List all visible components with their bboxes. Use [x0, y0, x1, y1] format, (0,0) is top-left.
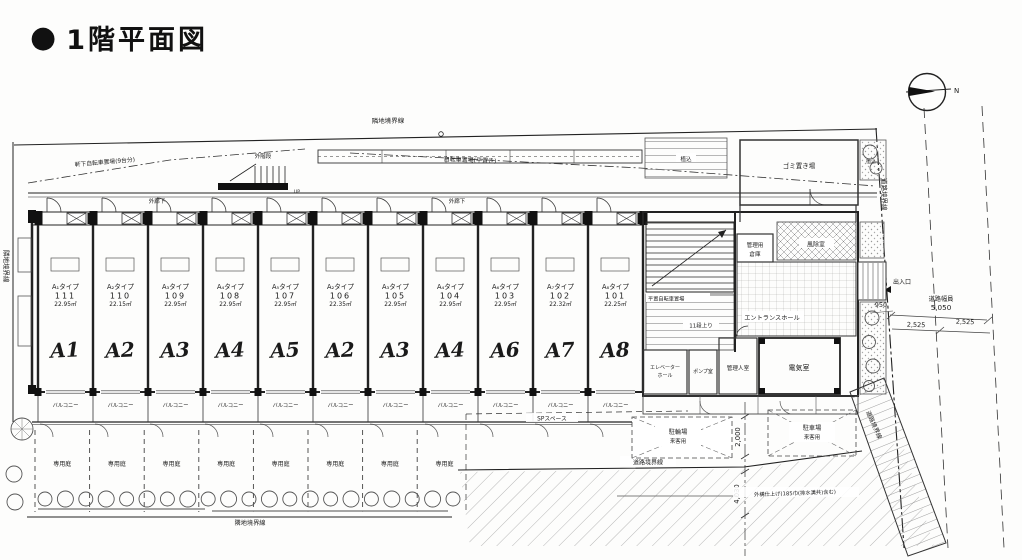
entry-label: 出入口: [893, 278, 911, 286]
unit-type-label: A₂タイプ: [107, 282, 134, 291]
porch-door-arc: [700, 401, 713, 414]
entry-door-arc: [102, 198, 116, 212]
unit-number-label: 101: [605, 292, 626, 301]
unit-handwritten-mark: A3: [378, 337, 411, 363]
garden-gate-arc: [315, 424, 328, 437]
closet-box: [106, 258, 134, 271]
shrub: [343, 491, 359, 507]
closet-box: [216, 258, 244, 271]
dim-2000-label: 2,000: [734, 427, 742, 446]
column: [834, 388, 840, 394]
visitor-bike-label-2: 来客用: [670, 437, 686, 445]
garden-label: 専用庭: [326, 460, 344, 468]
balcony-label: バルコニー: [438, 402, 464, 409]
boundary-marker: [439, 132, 444, 137]
south-yard: 道路境界線 道路境界線 駐輪場 来客用 駐車場 来客用: [458, 378, 946, 556]
tree-circle: [7, 494, 23, 510]
column: [759, 388, 765, 394]
unit-bay: A₄タイプ 108 22.95㎡ A4 バルコニー: [200, 198, 259, 437]
closet-box: [546, 258, 574, 271]
road-width-caption: 道路幅員: [929, 295, 954, 303]
south-pier: [35, 388, 42, 396]
south-pier: [530, 388, 537, 396]
unit-area-label: 22.95㎡: [54, 300, 77, 308]
planter-east-north: [860, 222, 884, 258]
west-alcove: [18, 296, 31, 346]
south-pier: [145, 388, 152, 396]
shrub: [221, 491, 237, 507]
road-center-line: [924, 108, 948, 548]
garden-gate-arc: [535, 424, 548, 437]
visitor-bike-label-1: 駐輪場: [669, 428, 688, 436]
tree-symbol: [6, 418, 33, 510]
unit-area-label: 22.95㎡: [219, 300, 242, 308]
porch-steps: [858, 262, 886, 300]
shrub: [384, 491, 400, 507]
column: [90, 211, 98, 225]
garden-label: 専用庭: [217, 460, 235, 468]
shrub: [364, 492, 378, 506]
garden-gate-arc: [425, 424, 438, 437]
outdoor-stair-symbol: 外階段 UP: [218, 152, 300, 195]
tree-spokes: [11, 418, 33, 440]
unit-handwritten-mark: A1: [48, 337, 81, 363]
boundary-top-line: [14, 129, 877, 145]
unit-type-label: A₇タイプ: [547, 282, 574, 291]
private-gardens: 専用庭 専用庭 専用庭 専用庭 専用庭 専用庭 専用庭 専用庭: [35, 430, 454, 512]
elevator-label-1: エレベーター: [650, 364, 680, 371]
unit-type-label: A₆タイプ: [492, 282, 519, 291]
shrub: [446, 492, 460, 506]
entry-door-arc: [322, 198, 336, 212]
planter-ne: 植込: [860, 140, 886, 180]
garden-gate-arc: [480, 424, 493, 437]
unit-number-label: 108: [220, 292, 241, 301]
tree-circle: [6, 466, 22, 482]
boundary-bottom-label: 隣地境界線: [235, 519, 266, 527]
entry-door-arc: [487, 198, 501, 212]
closet-box: [381, 258, 409, 271]
closet-box: [271, 258, 299, 271]
column: [310, 211, 318, 225]
balcony-label: バルコニー: [273, 402, 299, 409]
unit-bay: A₈タイプ 101 22.25㎡ A8 バルコニー: [585, 198, 644, 437]
unit-bay: A₃タイプ 109 22.95㎡ A3 バルコニー: [145, 198, 204, 437]
column: [530, 211, 538, 225]
garden-gate-arc: [205, 424, 218, 437]
north-compass-icon: N: [906, 74, 959, 111]
dim-tick: [984, 317, 992, 324]
compass-north-label: N: [954, 87, 959, 95]
garden-gate-arc: [95, 424, 108, 437]
unit-bay: A₆タイプ 103 22.95㎡ A6 バルコニー: [475, 198, 534, 437]
unit-bays: A₁タイプ 111 22.95㎡ A1 バルコニー: [35, 198, 644, 437]
road-far-line: [982, 106, 1004, 548]
garden-label: 専用庭: [162, 460, 180, 468]
unit-handwritten-mark: A6: [488, 337, 521, 363]
unit-number-label: 107: [275, 292, 296, 301]
balcony-label: バルコニー: [603, 402, 629, 409]
garden-label: 専用庭: [435, 460, 453, 468]
shrub: [324, 492, 338, 506]
garden-bay: 専用庭: [144, 430, 180, 512]
unit-handwritten-mark: A2: [103, 337, 136, 363]
shrub: [261, 491, 277, 507]
shrub: [180, 491, 196, 507]
sp-space-label: SPスペース: [537, 416, 567, 423]
unit-area-label: 22.95㎡: [384, 300, 407, 308]
entry-door-arc: [542, 198, 556, 212]
visitor-car-label-2: 来客用: [804, 433, 820, 441]
column: [145, 211, 153, 225]
trash-room: [740, 140, 858, 205]
closet-box: [601, 258, 629, 271]
unit-handwritten-mark: A4: [433, 337, 466, 363]
unit-area-label: 22.15㎡: [109, 300, 132, 308]
south-pier: [475, 388, 482, 396]
balcony-label: バルコニー: [383, 402, 409, 409]
road-half-1: 2,525: [907, 321, 926, 330]
column: [475, 211, 483, 225]
entrance-hall-label: エントランスホール: [744, 315, 800, 322]
south-pier: [310, 388, 317, 396]
manager-room-label: 管理人室: [727, 364, 750, 372]
entry-door-arc: [432, 198, 446, 212]
stair-up-label: UP: [294, 189, 300, 195]
garden-label: 専用庭: [108, 460, 126, 468]
floor-plan-drawing: 隣地境界線 隣地境界線 隣地境界線 道路境界線 道路幅員 5,050 2,525…: [0, 0, 1022, 560]
planting-label-2: 植込: [866, 158, 876, 165]
shrub: [139, 491, 155, 507]
garden-bay: 専用庭: [253, 430, 289, 512]
garden-label: 専用庭: [53, 460, 71, 468]
unit-type-label: A₂タイプ: [327, 282, 354, 291]
garden-gate-arc: [40, 424, 53, 437]
shrub: [120, 492, 134, 506]
entry-door-arc: [47, 198, 61, 212]
unit-bay: A₄タイプ 104 22.95㎡ A4 バルコニー: [420, 198, 479, 437]
compass-needle: [909, 87, 935, 96]
unit-handwritten-mark: A4: [213, 337, 246, 363]
unit-type-label: A₅タイプ: [272, 282, 299, 291]
entry-door-arc: [212, 198, 226, 212]
unit-number-label: 106: [330, 292, 351, 301]
electrical-room-label: 電気室: [789, 363, 810, 372]
column: [834, 338, 840, 344]
column: [420, 211, 428, 225]
mgmt-storage-label-1: 管理用: [747, 241, 764, 249]
bike-flat-inner-label: 平置自転車置場: [648, 295, 684, 303]
unit-number-label: 105: [385, 292, 406, 301]
south-pier: [255, 388, 262, 396]
trash-room-label: ゴミ置き場: [783, 161, 816, 170]
planting-label-1: 植込: [680, 155, 692, 163]
column: [759, 338, 765, 344]
south-pier: [365, 388, 372, 396]
closet-box: [51, 258, 79, 271]
south-pier: [200, 388, 207, 396]
unit-bay: A₃タイプ 105 22.95㎡ A3 バルコニー: [365, 198, 424, 437]
bike-eaves-label: 軒下自転車置場(9台分): [74, 155, 135, 168]
unit-bay: A₇タイプ 102 22.32㎡ A7 バルコニー: [530, 198, 589, 437]
windbreak-label: 風除室: [807, 241, 825, 249]
garden-gate-arc: [590, 424, 603, 437]
west-alcove: [18, 238, 31, 272]
shrub: [283, 492, 297, 506]
north-yard: 軒下自転車置場(9台分) 自転車置場(平置き) 外階段 UP: [28, 149, 875, 195]
common-block: 植込 ゴミ置き場 植込 平置自転車置場 11段上り: [643, 138, 886, 414]
unit-type-label: A₃タイプ: [162, 282, 189, 291]
elevator-room: [643, 350, 687, 394]
balcony-label: バルコニー: [548, 402, 574, 409]
visitor-car-parking: 駐車場 来客用: [768, 410, 856, 456]
balcony-label: バルコニー: [53, 402, 79, 409]
shrub: [405, 492, 419, 506]
unit-handwritten-mark: A5: [268, 337, 301, 363]
unit-number-label: 109: [165, 292, 186, 301]
balcony-label: バルコニー: [108, 402, 134, 409]
pump-room-label: ポンプ室: [693, 368, 713, 375]
boundary-road-label: 道路境界線: [880, 178, 889, 211]
shrub: [57, 491, 73, 507]
road-half-2: 2,525: [956, 318, 975, 327]
balcony-label: バルコニー: [328, 402, 354, 409]
column: [35, 211, 43, 225]
entrance-porch: [858, 262, 886, 300]
south-pier: [90, 388, 97, 396]
corridor-label-mid: 外廊下: [449, 197, 466, 205]
entry-door-arc: [377, 198, 391, 212]
unit-number-label: 111: [55, 292, 76, 301]
unit-area-label: 22.95㎡: [439, 300, 462, 308]
closet-box: [326, 258, 354, 271]
shrub: [242, 492, 256, 506]
unit-number-label: 104: [440, 292, 461, 301]
unit-area-label: 22.95㎡: [274, 300, 297, 308]
shrub: [160, 492, 174, 506]
unit-bay: A₂タイプ 110 22.15㎡ A2 バルコニー: [90, 198, 149, 437]
visitor-bike-parking: 駐輪場 来客用: [632, 417, 732, 458]
unit-type-label: A₄タイプ: [217, 282, 244, 291]
unit-bay: A₂タイプ 106 22.35㎡ A2 バルコニー: [310, 198, 369, 437]
garden-bay: 専用庭: [90, 430, 126, 512]
balcony-label: バルコニー: [218, 402, 244, 409]
steps-note-label: 11段上り: [689, 322, 713, 330]
road-width-value: 5,050: [931, 303, 952, 312]
unit-number-label: 110: [110, 292, 131, 301]
unit-handwritten-mark: A2: [323, 337, 356, 363]
shrub: [79, 492, 93, 506]
visitor-car-label-1: 駐車場: [803, 424, 822, 432]
garden-bay: 専用庭: [308, 430, 344, 512]
closet-box: [436, 258, 464, 271]
outdoor-stair-label: 外階段: [255, 152, 272, 160]
unit-number-label: 102: [550, 292, 571, 301]
entrance-hall: [737, 262, 856, 336]
unit-handwritten-mark: A3: [158, 337, 191, 363]
unit-area-label: 22.32㎡: [549, 300, 572, 308]
garden-bay: 専用庭: [417, 430, 453, 512]
unit-bay: A₅タイプ 107 22.95㎡ A5 バルコニー: [255, 198, 314, 437]
unit-area-label: 22.25㎡: [604, 300, 627, 308]
mgmt-storage-label-2: 倉庫: [749, 250, 761, 258]
garden-bay: 専用庭: [35, 430, 71, 512]
unit-area-label: 22.95㎡: [494, 300, 517, 308]
shrub: [201, 492, 215, 506]
shrub: [302, 491, 318, 507]
road-bottom-label: 道路境界線: [633, 459, 663, 467]
garden-gate-arc: [370, 424, 383, 437]
closet-box: [161, 258, 189, 271]
south-pier: [585, 388, 592, 396]
column: [585, 211, 593, 225]
unit-type-label: A₈タイプ: [602, 282, 629, 291]
balcony-label: バルコニー: [163, 402, 189, 409]
closet-box: [491, 258, 519, 271]
shrub: [38, 492, 52, 506]
unit-area-label: 22.35㎡: [329, 300, 352, 308]
south-porch: [643, 396, 858, 414]
garden-gate-arc: [260, 424, 273, 437]
porch-door-arc: [780, 401, 793, 414]
floor-plan-page: ● 1階平面図: [0, 0, 1022, 560]
column: [200, 211, 208, 225]
garden-bay: 専用庭: [199, 430, 235, 512]
shrub-row: [38, 491, 460, 507]
entry-door-arc: [597, 198, 611, 212]
unit-number-label: 103: [495, 292, 516, 301]
garden-label: 専用庭: [381, 460, 399, 468]
unit-type-label: A₃タイプ: [382, 282, 409, 291]
garden-label: 専用庭: [272, 460, 290, 468]
stair-base: [218, 183, 288, 190]
unit-area-label: 22.95㎡: [164, 300, 187, 308]
column: [255, 211, 263, 225]
garden-gate-arc: [150, 424, 163, 437]
unit-handwritten-mark: A7: [543, 337, 576, 363]
balcony-label: バルコニー: [493, 402, 519, 409]
unit-bay: A₁タイプ 111 22.95㎡ A1 バルコニー: [35, 198, 94, 437]
boundary-top-label: 隣地境界線: [372, 116, 405, 126]
unit-type-label: A₄タイプ: [437, 282, 464, 291]
shrub: [98, 491, 114, 507]
corridor: 外廊下 外廊下: [28, 193, 877, 205]
south-pier: [420, 388, 427, 396]
boundary-left-label: 隣地境界線: [2, 250, 11, 283]
column: [365, 211, 373, 225]
unit-type-label: A₁タイプ: [52, 282, 79, 291]
unit-handwritten-mark: A8: [598, 337, 631, 363]
stair-arrow: [230, 164, 256, 181]
elevator-label-2: ホール: [657, 373, 672, 379]
entry-door-arc: [267, 198, 281, 212]
shrub: [425, 491, 441, 507]
garden-bay: 専用庭: [363, 430, 399, 512]
